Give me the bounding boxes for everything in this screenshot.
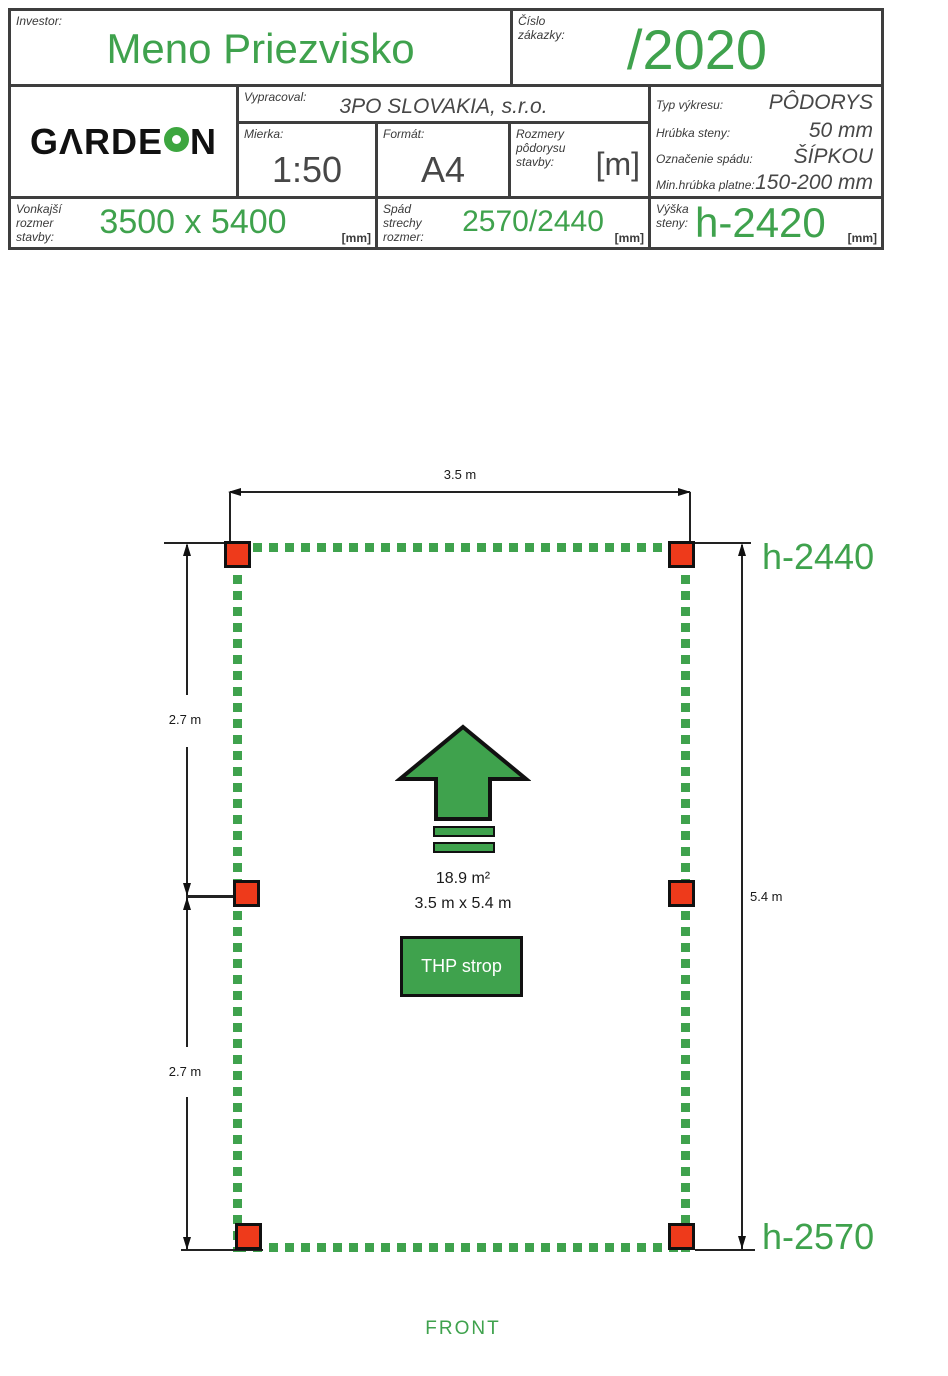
spec-row: Označenie spádu: ŠÍPKOU <box>651 145 881 171</box>
arrowhead-up-icon <box>183 897 191 910</box>
post-top-left <box>224 541 251 568</box>
title-block: Investor: Meno Priezvisko Číslo zákazky:… <box>8 8 884 250</box>
dim-label-left-lower: 2.7 m <box>155 1064 215 1079</box>
mierka-label: Mierka: <box>244 127 283 141</box>
arrowhead-down-icon <box>183 883 191 896</box>
order-number-value: /2020 <box>513 17 881 82</box>
rozmery-label: Rozmery pôdorysu stavby: <box>516 127 582 169</box>
tick-middle-left <box>187 895 237 898</box>
drawing-sheet: Investor: Meno Priezvisko Číslo zákazky:… <box>0 0 948 1376</box>
order-number-cell: Číslo zákazky: /2020 <box>513 11 881 84</box>
vyska-value: h-2420 <box>695 199 826 247</box>
arrowhead-down-icon <box>183 1237 191 1250</box>
spec-value: ŠÍPKOU <box>794 145 873 169</box>
format-value: A4 <box>378 149 508 191</box>
spec-label: Typ výkresu: <box>656 98 723 112</box>
dimension-line-left-seg3 <box>186 1097 188 1249</box>
dimension-line-left-seg1 <box>186 545 188 695</box>
vypracoval-cell: Vypracoval: 3PO SLOVAKIA, s.r.o. <box>239 87 648 121</box>
format-cell: Formát: A4 <box>378 124 508 196</box>
tick-top-left <box>164 542 228 544</box>
wall-bottom <box>237 1243 686 1252</box>
dimension-line-top <box>230 491 690 493</box>
arrowhead-up-icon <box>738 543 746 556</box>
dim-label-right: 5.4 m <box>750 889 783 904</box>
area-value: 18.9 m² <box>383 870 543 888</box>
mierka-value: 1:50 <box>239 149 375 191</box>
post-bottom-left <box>235 1223 262 1250</box>
wall-top <box>237 543 686 552</box>
arrowhead-up-icon <box>183 543 191 556</box>
rozmery-value: [m] <box>596 146 640 183</box>
investor-value: Meno Priezvisko <box>11 25 510 73</box>
slope-arrow-icon <box>395 723 531 823</box>
spec-label: Min.hrúbka platne: <box>656 178 755 192</box>
logo-text-left: GΛRDE <box>30 121 163 162</box>
spec-label: Hrúbka steny: <box>656 126 730 140</box>
height-label-bottom: h-2570 <box>762 1216 874 1258</box>
spad-unit: [mm] <box>615 231 644 245</box>
spec-label: Označenie spádu: <box>656 152 753 166</box>
post-top-right <box>668 541 695 568</box>
dimension-line-right <box>741 545 743 1249</box>
specs-cell: Typ výkresu: PÔDORYS Hrúbka steny: 50 mm… <box>651 87 881 196</box>
post-bottom-right <box>668 1223 695 1250</box>
slope-arrow-bar <box>433 826 495 837</box>
spad-cell: Spád strechy rozmer: 2570/2440 [mm] <box>378 199 648 247</box>
logo-cell: GΛRDEN <box>11 87 236 196</box>
vypracoval-value: 3PO SLOVAKIA, s.r.o. <box>239 95 648 119</box>
ceiling-badge: THP strop <box>400 936 523 997</box>
dim-label-left-upper: 2.7 m <box>155 712 215 727</box>
post-middle-left <box>233 880 260 907</box>
vonkajsi-cell: Vonkajší rozmer stavby: 3500 x 5400 [mm] <box>11 199 375 247</box>
dim-label-top: 3.5 m <box>430 467 490 482</box>
format-label: Formát: <box>383 127 424 141</box>
gardeon-logo: GΛRDEN <box>11 121 236 163</box>
vonkajsi-value: 3500 x 5400 <box>11 203 375 242</box>
logo-o-icon <box>164 127 189 152</box>
front-label: FRONT <box>383 1318 543 1340</box>
extension-line-right <box>689 492 691 542</box>
spec-value: PÔDORYS <box>769 91 873 115</box>
vonkajsi-unit: [mm] <box>342 231 371 245</box>
spec-value: 50 mm <box>809 119 873 143</box>
vyska-unit: [mm] <box>848 231 877 245</box>
arrowhead-down-icon <box>738 1236 746 1249</box>
post-middle-right <box>668 880 695 907</box>
spec-row: Min.hrúbka platne: 150-200 mm <box>651 171 881 196</box>
spec-value: 150-200 mm <box>755 171 873 195</box>
mierka-cell: Mierka: 1:50 <box>239 124 375 196</box>
investor-cell: Investor: Meno Priezvisko <box>11 11 510 84</box>
size-value: 3.5 m x 5.4 m <box>383 895 543 913</box>
tick-bottom-right <box>695 1249 755 1251</box>
spad-value: 2570/2440 <box>418 205 648 239</box>
spec-row: Hrúbka steny: 50 mm <box>651 119 881 145</box>
rozmery-cell: Rozmery pôdorysu stavby: [m] <box>511 124 648 196</box>
ceiling-label: THP strop <box>421 956 502 977</box>
extension-line-left <box>229 492 231 542</box>
spec-row: Typ výkresu: PÔDORYS <box>651 91 881 119</box>
vyska-label: Výška steny: <box>656 202 696 230</box>
vyska-cell: Výška steny: h-2420 [mm] <box>651 199 881 247</box>
slope-arrow-bar <box>433 842 495 853</box>
height-label-top: h-2440 <box>762 536 874 578</box>
logo-text-right: N <box>190 121 217 162</box>
